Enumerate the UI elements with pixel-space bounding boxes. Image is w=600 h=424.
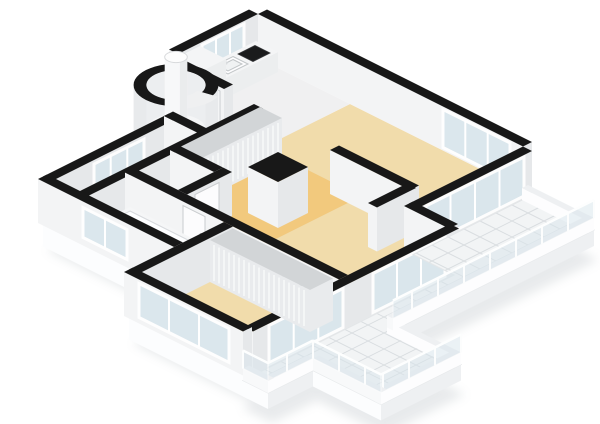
floorplan-3d-view xyxy=(0,0,600,424)
column xyxy=(248,152,308,228)
floorplan-3d-svg xyxy=(0,0,600,424)
